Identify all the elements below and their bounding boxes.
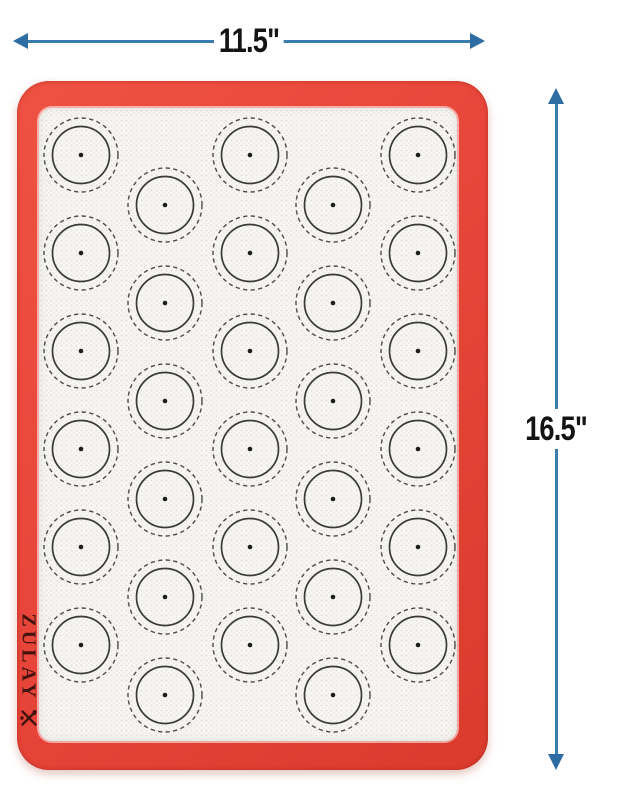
mat-mesh-surface (39, 108, 457, 741)
brand-logo: ZULAY (17, 606, 42, 736)
crossed-utensils-icon (20, 709, 39, 728)
arrow-up-head-icon (548, 88, 564, 104)
width-dimension-label: 11.5" (214, 21, 284, 61)
arrow-left-head-icon (13, 33, 28, 49)
brand-logo-text: ZULAY (19, 613, 39, 701)
arrow-right-head-icon (470, 33, 485, 49)
height-dimension-label: 16.5" (520, 409, 591, 449)
product-dimension-diagram: 11.5" 16.5" ZULAY (0, 0, 620, 795)
arrow-down-head-icon (548, 754, 564, 770)
baking-mat: ZULAY (17, 81, 488, 770)
width-dimension-arrow: 11.5" (13, 27, 485, 55)
height-dimension-arrow: 16.5" (543, 88, 569, 770)
